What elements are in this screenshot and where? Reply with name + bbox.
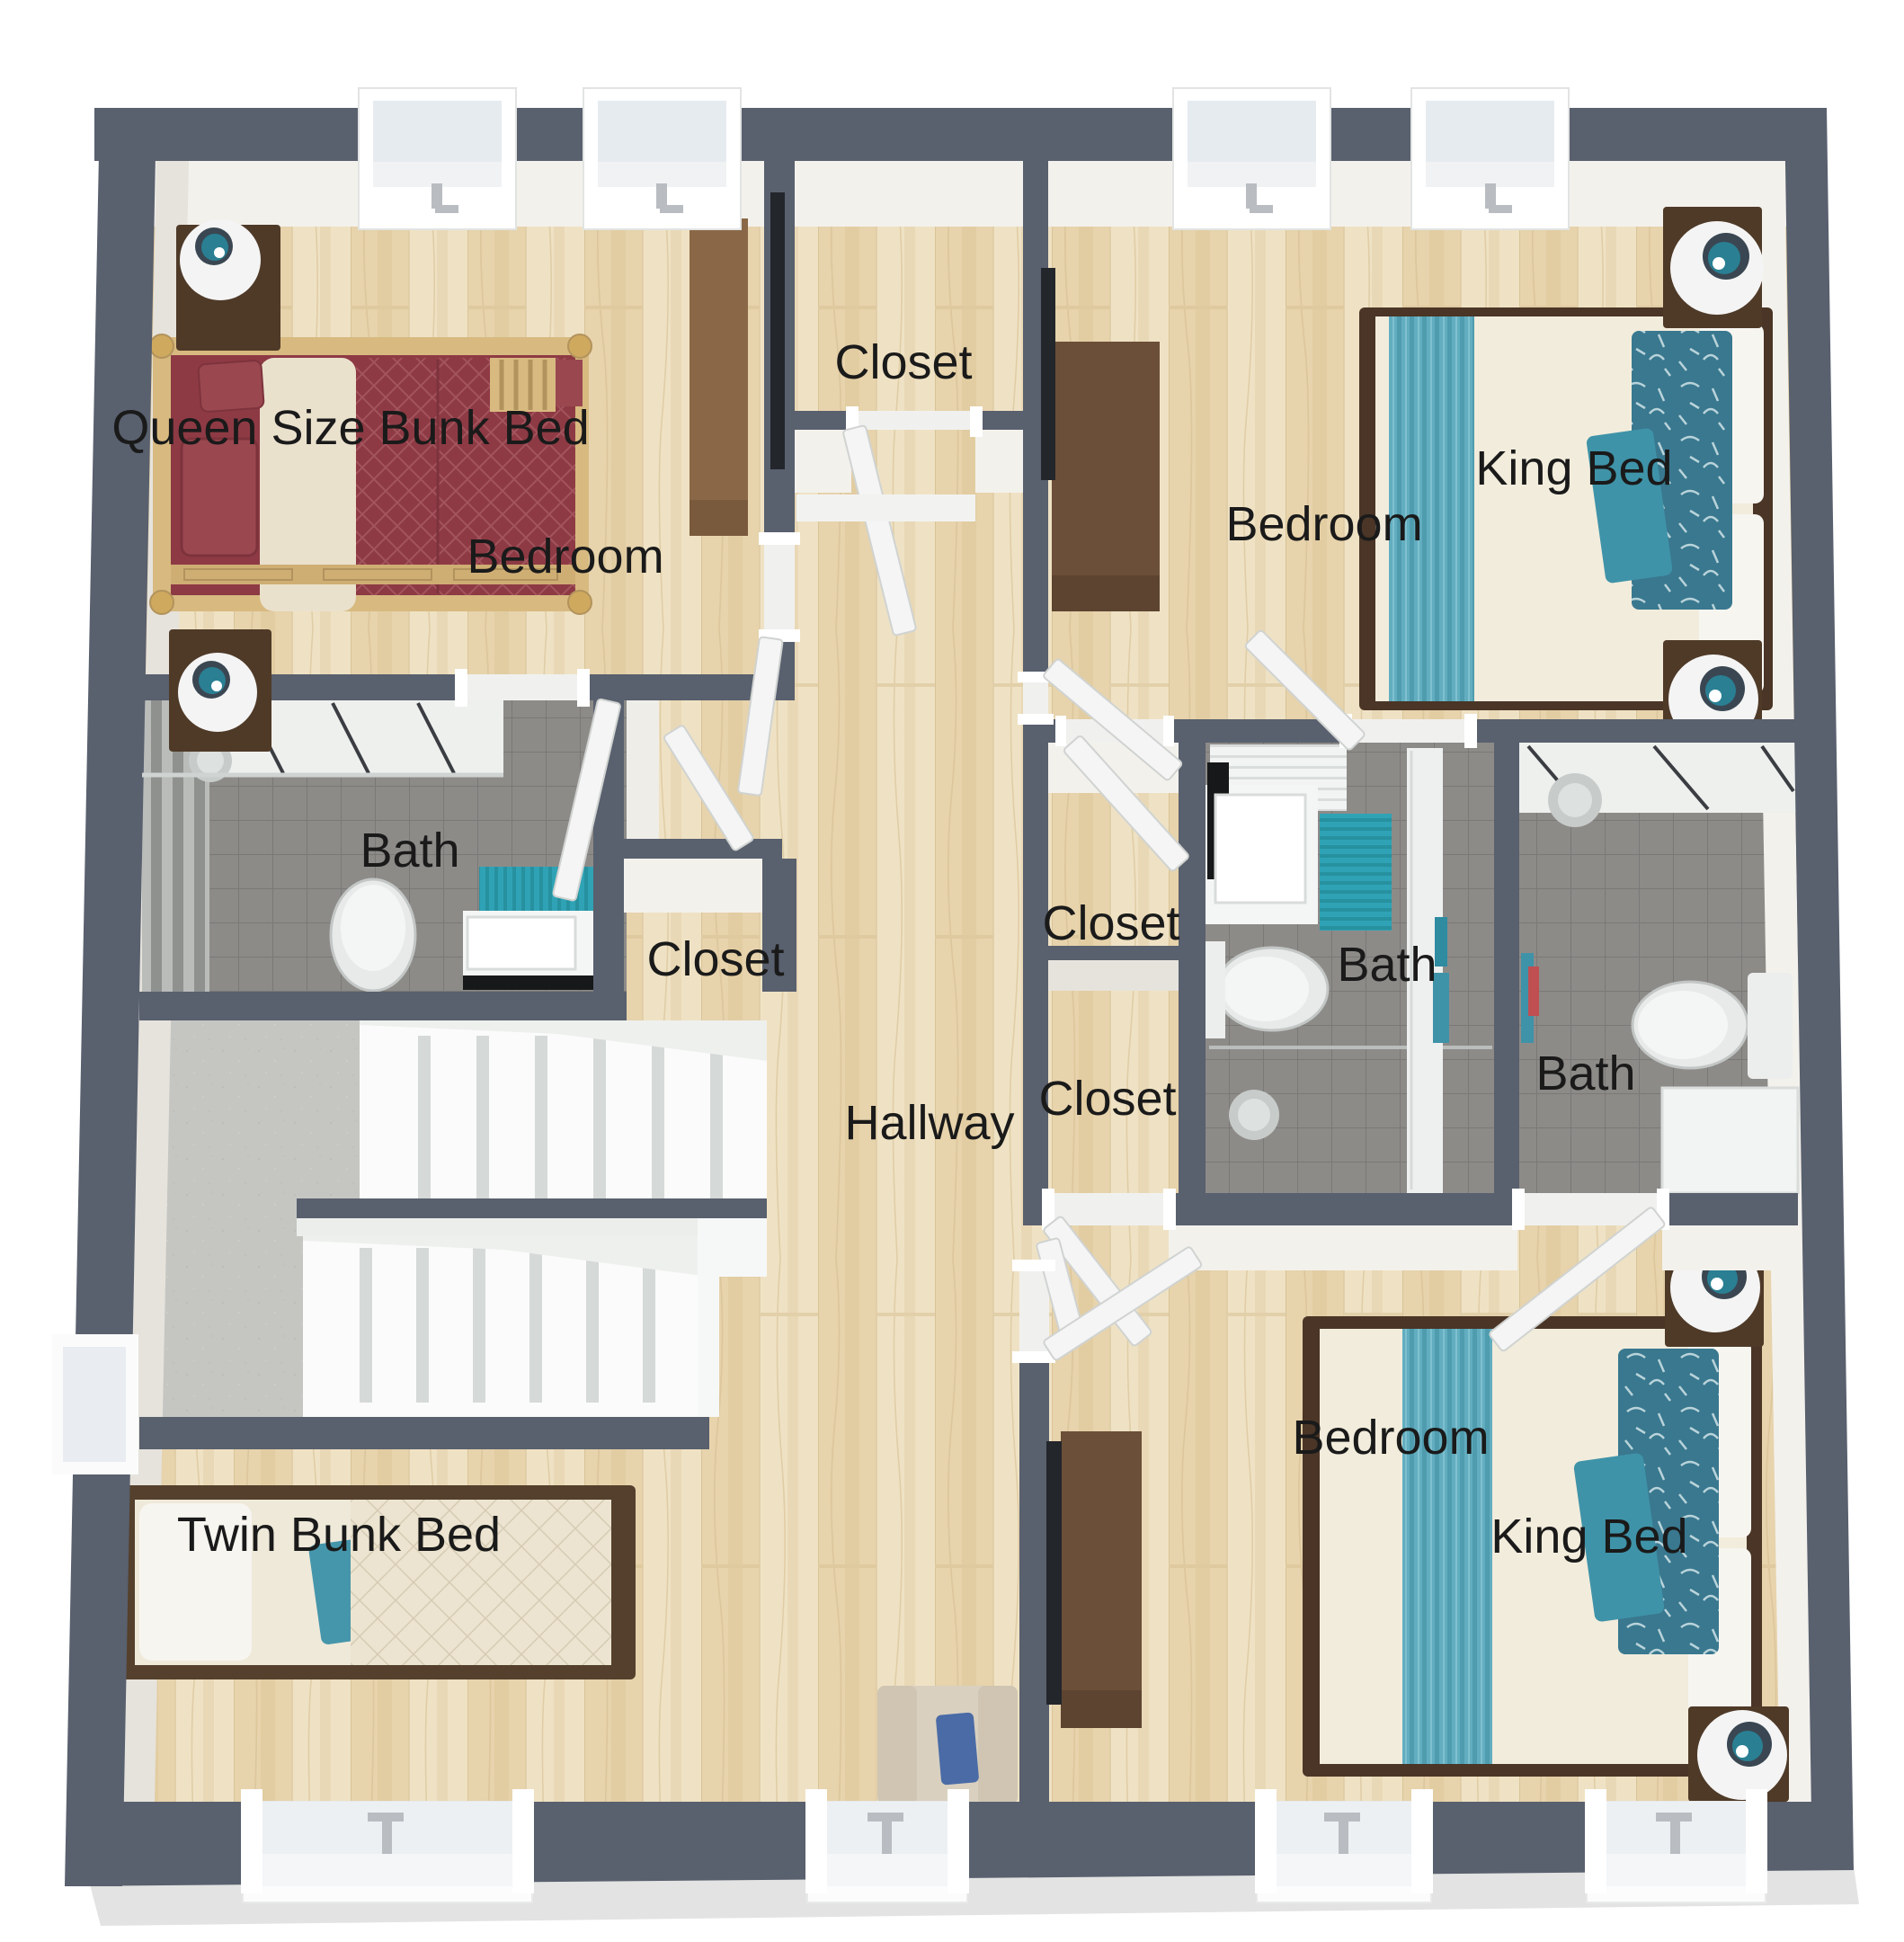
svg-text:Bedroom: Bedroom bbox=[1225, 497, 1422, 551]
svg-text:Hallway: Hallway bbox=[844, 1096, 1014, 1150]
svg-text:Bedroom: Bedroom bbox=[467, 530, 663, 583]
svg-text:Twin Bunk Bed: Twin Bunk Bed bbox=[177, 1508, 501, 1562]
svg-text:Bedroom: Bedroom bbox=[1292, 1411, 1489, 1465]
svg-text:Closet: Closet bbox=[1038, 1072, 1176, 1126]
svg-text:King Bed: King Bed bbox=[1475, 441, 1672, 495]
svg-text:King Bed: King Bed bbox=[1490, 1510, 1687, 1563]
svg-text:Bath: Bath bbox=[360, 824, 459, 877]
svg-text:Queen Size Bunk Bed: Queen Size Bunk Bed bbox=[111, 401, 589, 455]
svg-text:Closet: Closet bbox=[1042, 896, 1179, 950]
svg-text:Closet: Closet bbox=[834, 335, 972, 389]
svg-text:Bath: Bath bbox=[1535, 1047, 1635, 1100]
svg-text:Closet: Closet bbox=[646, 932, 784, 986]
svg-text:Bath: Bath bbox=[1337, 938, 1437, 992]
